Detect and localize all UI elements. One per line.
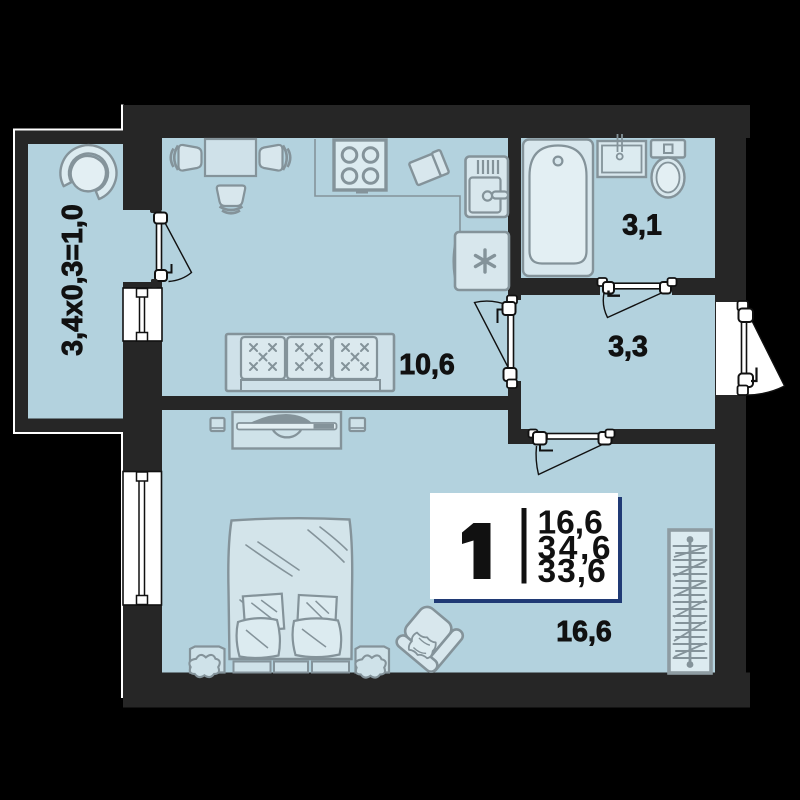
svg-text:3,4x0,3=1,0: 3,4x0,3=1,0 xyxy=(57,204,89,355)
svg-text:3,3: 3,3 xyxy=(608,331,648,363)
svg-text:3,1: 3,1 xyxy=(622,210,662,242)
svg-text:10,6: 10,6 xyxy=(399,349,454,381)
svg-text:16,6: 16,6 xyxy=(556,616,611,648)
svg-text:33,6: 33,6 xyxy=(538,553,607,590)
